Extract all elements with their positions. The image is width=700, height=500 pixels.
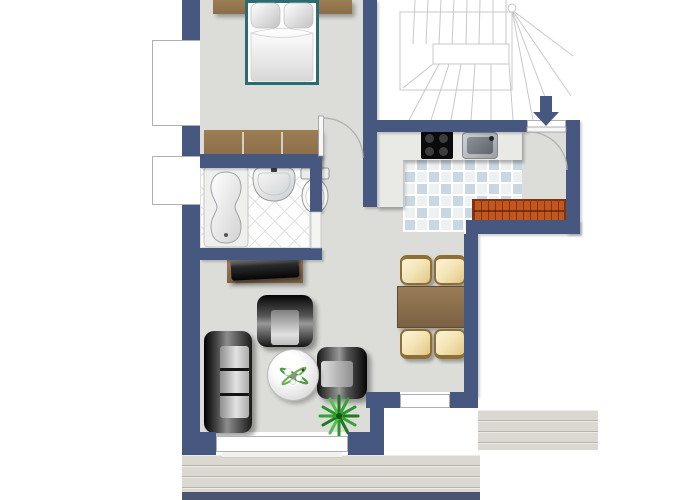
floor-plan [0, 0, 700, 500]
entrance-arrow-icon [533, 112, 559, 126]
door-swings [0, 0, 700, 500]
entrance-arrow-shaft [540, 96, 552, 112]
